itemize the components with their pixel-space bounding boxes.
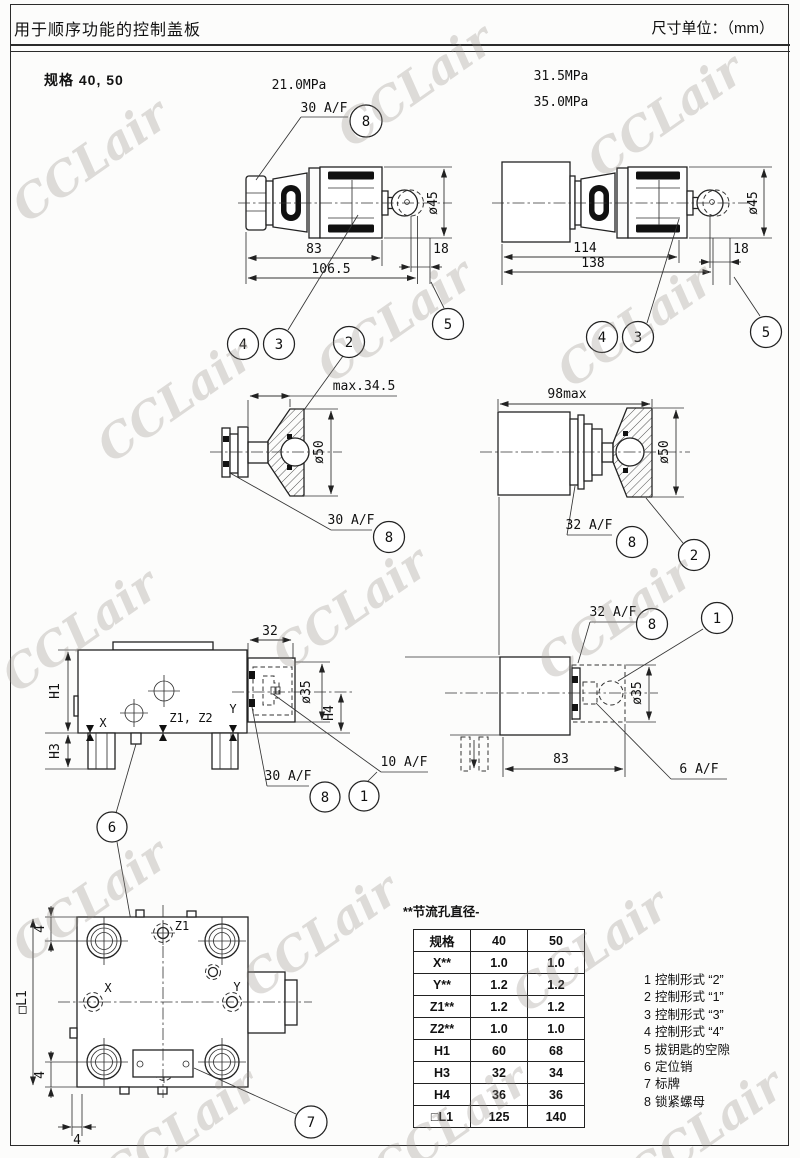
table-note: **节流孔直径- [403,901,479,920]
svg-text:8: 8 [648,617,656,633]
table-cell: 1.2 [471,996,528,1018]
legend-text: 控制形式 “1” [655,990,724,1004]
svg-text:8: 8 [362,114,370,130]
table-row: X**1.01.0 [414,952,585,974]
legend-num: 5 [644,1043,651,1057]
legend-num: 2 [644,990,651,1004]
balloon-8c: 8 [617,527,648,558]
dim-h3-label: H3 [48,743,63,759]
wrench-32af-label: 32 A/F [566,518,613,533]
dim-18-label: 18 [433,242,449,257]
legend-text: 拔钥匙的空隙 [655,1043,730,1057]
table-cell: 1.0 [471,1018,528,1040]
svg-text:2: 2 [690,548,698,564]
table-cell: Y** [414,974,471,996]
dim-l1-label: □L1 [15,990,30,1013]
hole-y-label: Y [233,980,241,994]
legend-num: 7 [644,1077,651,1091]
balloon-2b: 2 [679,540,710,571]
legend-text: 控制形式 “4” [655,1025,724,1039]
dim-h1-label: H1 [48,683,63,699]
dim-h4-label: H4 [322,705,337,721]
legend-num: 8 [644,1095,651,1109]
legend-num: 4 [644,1025,651,1039]
svg-text:5: 5 [444,317,452,333]
table-header: 规格 [414,930,471,952]
wrench-32af-label-2: 32 A/F [590,605,637,620]
dim-4-horiz-label: 4 [73,1133,81,1148]
view-valve-315mpa: 31.5MPa 35.0MPa ø45 114 [492,69,782,353]
balloon-7: 7 [295,1106,327,1138]
svg-text:3: 3 [634,330,642,346]
wrench-6af-label: 6 A/F [679,762,718,777]
port-z1z2-label: Z1, Z2 [169,711,212,725]
svg-text:8: 8 [321,790,329,806]
dim-max345-label: max.34.5 [333,379,396,394]
table-row: H33234 [414,1062,585,1084]
table-cell: 36 [471,1084,528,1106]
table-header: 50 [528,930,585,952]
dim-dia45-label-2: ø45 [746,191,761,214]
dim-dia35-label: ø35 [299,680,314,703]
legend-text: 控制形式 “2” [655,973,724,987]
legend-item: 1控制形式 “2” [644,972,734,989]
dim-106-5-label: 106.5 [311,262,350,277]
dim-98max-label: 98max [547,387,586,402]
dim-18-label-2: 18 [733,242,749,257]
dim-dia35-label-2: ø35 [630,681,645,704]
table-cell: 1.2 [471,974,528,996]
balloon-4b: 4 [587,322,618,353]
table-row: □L1125140 [414,1106,585,1128]
view-cartridge-side: ø35 32 A/F 8 1 6 A/F 83 [405,603,733,780]
table-row: Z1**1.21.2 [414,996,585,1018]
legend-num: 6 [644,1060,651,1074]
table-cell: □L1 [414,1106,471,1128]
balloon-1: 1 [349,781,379,811]
drawing-sheet: 用于顺序功能的控制盖板 尺寸单位：（mm） 规格 40, 50 21.0MPa [0,0,800,1158]
dim-32-label: 32 [262,624,278,639]
svg-text:8: 8 [385,530,393,546]
svg-text:2: 2 [345,335,353,351]
svg-text:4: 4 [598,330,606,346]
table-cell: Z1** [414,996,471,1018]
view-valve-21mpa: 21.0MPa ø45 83 [228,78,464,360]
table-cell: H4 [414,1084,471,1106]
dim-4-bottom-label: 4 [33,1071,48,1079]
svg-text:1: 1 [360,789,368,805]
table-row: H43636 [414,1084,585,1106]
view-flange-345: 2 max.34.5 ø50 30 A/F 8 [210,327,405,553]
wrench-30af-label: 30 A/F [301,101,348,116]
pressure-350mpa-label: 35.0MPa [534,95,589,110]
view-block-side: X Z1, Z2 Y H1 H3 32 ø35 H4 30 A/F [45,624,428,938]
table-cell: 36 [528,1084,585,1106]
table-cell: 34 [528,1062,585,1084]
legend: 1控制形式 “2” 2控制形式 “1” 3控制形式 “3” 4控制形式 “4” … [644,972,734,1111]
table-cell: 1.0 [528,1018,585,1040]
pressure-21mpa-label: 21.0MPa [272,78,327,93]
dim-4-top-label: 4 [33,925,48,933]
wrench-30af-label-2: 30 A/F [328,513,375,528]
hole-z1-label: Z1 [175,919,189,933]
port-x-label: X [99,716,107,730]
table-row: 规格 40 50 [414,930,585,952]
view-block-bottom: Z1 X Y Z2 4 □L1 [15,905,327,1148]
svg-text:5: 5 [762,325,770,341]
pressure-315mpa-label: 31.5MPa [534,69,589,84]
dim-83-label: 83 [306,242,322,257]
legend-text: 定位销 [655,1060,693,1074]
table-cell: 1.2 [528,996,585,1018]
balloon-6: 6 [97,812,127,842]
legend-text: 锁紧螺母 [655,1095,705,1109]
balloon-8e: 8 [637,609,668,640]
balloon-3b: 3 [623,322,654,353]
dim-dia45-label: ø45 [426,191,441,214]
table-cell: 1.0 [528,952,585,974]
legend-item: 8锁紧螺母 [644,1094,734,1111]
legend-item: 4控制形式 “4” [644,1024,734,1041]
svg-text:4: 4 [239,337,247,353]
dim-dia50-label-2: ø50 [657,440,672,463]
svg-text:7: 7 [307,1115,315,1131]
spec-table: 规格 40 50 X**1.01.0 Y**1.21.2 Z1**1.21.2 … [413,929,585,1128]
balloon-4: 4 [228,329,259,360]
table-row: Y**1.21.2 [414,974,585,996]
dim-dia50-label: ø50 [312,440,327,463]
table-cell: 32 [471,1062,528,1084]
balloon-1b: 1 [702,603,733,634]
table-cell: X** [414,952,471,974]
port-y-label: Y [229,702,237,716]
legend-num: 1 [644,973,651,987]
balloon-5b: 5 [751,317,782,348]
legend-item: 2控制形式 “1” [644,989,734,1006]
legend-item: 5拔钥匙的空隙 [644,1042,734,1059]
table-row: H16068 [414,1040,585,1062]
hole-x-label: X [104,981,112,995]
balloon-8b: 8 [374,522,405,553]
table-cell: 140 [528,1106,585,1128]
svg-text:8: 8 [628,535,636,551]
table-cell: Z2** [414,1018,471,1040]
svg-text:1: 1 [713,611,721,627]
table-cell: H3 [414,1062,471,1084]
svg-text:3: 3 [275,337,283,353]
balloon-5: 5 [433,309,464,340]
wrench-10af-label: 10 A/F [381,755,428,770]
table-cell: 68 [528,1040,585,1062]
balloon-8: 8 [350,105,382,137]
table-cell: 60 [471,1040,528,1062]
balloon-8d: 8 [310,782,340,812]
legend-item: 3控制形式 “3” [644,1007,734,1024]
wrench-30af-label-3: 30 A/F [265,769,312,784]
dim-83-label-2: 83 [553,752,569,767]
svg-text:6: 6 [108,820,116,836]
balloon-3: 3 [264,329,295,360]
dim-114-label: 114 [573,241,597,256]
table-row: Z2**1.01.0 [414,1018,585,1040]
table-cell: 1.2 [528,974,585,996]
table-cell: 1.0 [471,952,528,974]
legend-item: 7标牌 [644,1076,734,1093]
legend-text: 控制形式 “3” [655,1008,724,1022]
table-cell: 125 [471,1106,528,1128]
balloon-2: 2 [334,327,365,358]
legend-item: 6定位销 [644,1059,734,1076]
table-cell: H1 [414,1040,471,1062]
dim-138-label: 138 [581,256,604,271]
legend-text: 标牌 [655,1077,680,1091]
legend-num: 3 [644,1008,651,1022]
table-header: 40 [471,930,528,952]
